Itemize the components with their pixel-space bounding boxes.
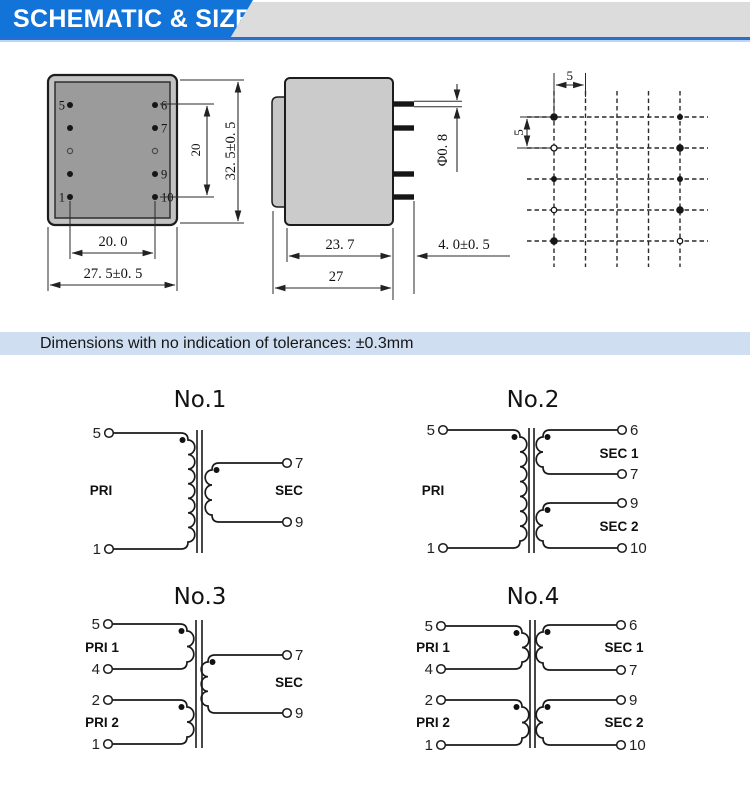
pin-9-dot bbox=[152, 171, 158, 177]
pin-label-7: 7 bbox=[161, 122, 167, 136]
pin-10-dot bbox=[152, 194, 158, 200]
pin-number: 2 bbox=[92, 692, 100, 709]
pin-number: 6 bbox=[630, 422, 638, 439]
winding-label: SEC 1 bbox=[599, 446, 639, 461]
pin-7-dot bbox=[152, 125, 158, 131]
terminal-circle bbox=[617, 696, 626, 705]
pin-number: 1 bbox=[92, 736, 100, 753]
winding-label: PRI 2 bbox=[416, 715, 450, 730]
terminal-circle bbox=[105, 545, 114, 554]
terminal-circle bbox=[618, 470, 627, 479]
dim-pin-row-height: 20 bbox=[188, 144, 203, 157]
terminal-circle bbox=[437, 741, 446, 750]
phase-dot bbox=[545, 629, 551, 635]
schematic-title: No.3 bbox=[174, 584, 227, 610]
terminal-circle bbox=[618, 499, 627, 508]
pin-number: 10 bbox=[630, 540, 647, 557]
pin-number: 4 bbox=[425, 661, 433, 678]
pin-number: 5 bbox=[93, 425, 101, 442]
pin-6-dot bbox=[152, 102, 158, 108]
pin-label-1: 1 bbox=[59, 191, 65, 205]
terminal-circle bbox=[437, 696, 446, 705]
pin-number: 9 bbox=[295, 705, 303, 722]
terminal-circle bbox=[618, 544, 627, 553]
terminal-circle bbox=[283, 459, 292, 468]
pin-bar-2 bbox=[393, 125, 414, 130]
terminal-circle bbox=[283, 651, 292, 660]
winding-label: SEC 2 bbox=[599, 519, 638, 534]
pin-number: 1 bbox=[425, 737, 433, 754]
phase-dot bbox=[179, 704, 185, 710]
winding-label: PRI bbox=[90, 483, 113, 498]
pin-number: 1 bbox=[93, 541, 101, 558]
pin-number: 7 bbox=[630, 466, 638, 483]
winding-label: SEC bbox=[275, 483, 303, 498]
winding-label: SEC bbox=[275, 675, 303, 690]
phase-dot bbox=[210, 659, 216, 665]
dim-grid-pitch-h: 5 bbox=[567, 68, 574, 83]
pin-number: 7 bbox=[295, 647, 303, 664]
phase-dot bbox=[545, 704, 551, 710]
pin-grid-drawing: 5 5 bbox=[515, 55, 750, 315]
schematic-1: No.151PRI79SEC bbox=[55, 378, 315, 575]
winding-label: PRI 1 bbox=[416, 640, 450, 655]
phase-dot bbox=[545, 434, 551, 440]
pin-number: 4 bbox=[92, 661, 100, 678]
schematic-title: No.1 bbox=[174, 387, 227, 413]
winding-label: PRI 1 bbox=[85, 640, 119, 655]
winding-coil bbox=[113, 433, 195, 549]
terminal-circle bbox=[437, 665, 446, 674]
phase-dot bbox=[514, 630, 520, 636]
grid-pin-dot bbox=[676, 206, 684, 214]
terminal-circle bbox=[104, 620, 113, 629]
schematic-4: No.454PRI 121PRI 267SEC 1910SEC 2 bbox=[395, 575, 705, 785]
terminal-circle bbox=[283, 518, 292, 527]
pin-number: 5 bbox=[427, 422, 435, 439]
pin-number: 9 bbox=[629, 692, 637, 709]
terminal-circle bbox=[617, 666, 626, 675]
phase-dot bbox=[514, 704, 520, 710]
pin-number: 10 bbox=[629, 737, 646, 754]
pin-number: 6 bbox=[629, 617, 637, 634]
dim-body-height: 32. 5±0. 5 bbox=[223, 122, 239, 181]
phase-dot bbox=[545, 507, 551, 513]
pin-label-9: 9 bbox=[161, 168, 167, 182]
pin-number: 9 bbox=[630, 495, 638, 512]
terminal-circle bbox=[104, 740, 113, 749]
terminal-circle bbox=[618, 426, 627, 435]
pin-bar-4 bbox=[393, 194, 414, 199]
dim-pin-diameter: Φ0. 8 bbox=[435, 134, 451, 166]
pin-2-dot bbox=[67, 171, 73, 177]
schematic-2: No.251PRI67SEC 1910SEC 2 bbox=[395, 378, 705, 575]
winding-label: PRI 2 bbox=[85, 715, 119, 730]
tolerance-note-text: Dimensions with no indication of toleran… bbox=[40, 335, 413, 352]
winding-coil bbox=[447, 430, 527, 548]
terminal-circle bbox=[617, 621, 626, 630]
phase-dot bbox=[180, 437, 186, 443]
winding-label: PRI bbox=[422, 483, 445, 498]
pin-number: 9 bbox=[295, 514, 303, 531]
schematic-title: No.4 bbox=[507, 584, 560, 610]
header-underline-light bbox=[0, 40, 750, 42]
terminal-circle bbox=[104, 665, 113, 674]
phase-dot bbox=[214, 467, 220, 473]
terminal-circle bbox=[105, 429, 114, 438]
pin-4-dot bbox=[67, 125, 73, 131]
dim-side-body-width: 23. 7 bbox=[326, 237, 355, 253]
top-view-drawing: 5 1 6 7 9 10 20 32. 5±0. 5 20. 0 27. 5±0… bbox=[25, 60, 255, 320]
pin-number: 2 bbox=[425, 692, 433, 709]
grid-pin-dot bbox=[676, 144, 684, 152]
grid-pin-hollow bbox=[551, 207, 556, 212]
terminal-circle bbox=[439, 544, 448, 553]
dim-pin-length: 4. 0±0. 5 bbox=[438, 237, 489, 253]
winding-label: SEC 2 bbox=[604, 715, 643, 730]
grid-pin-dot bbox=[550, 237, 558, 245]
grid-pin-dot bbox=[677, 176, 683, 182]
terminal-circle bbox=[617, 741, 626, 750]
pin-number: 7 bbox=[629, 662, 637, 679]
terminal-circle bbox=[439, 426, 448, 435]
terminal-circle bbox=[283, 709, 292, 718]
pin-number: 5 bbox=[92, 616, 100, 633]
pin-bar-3 bbox=[393, 171, 414, 176]
side-view-drawing: Φ0. 8 23. 7 27 4. 0±0. 5 bbox=[260, 60, 515, 320]
section-title: SCHEMATIC & SIZE bbox=[13, 5, 252, 33]
tolerance-note-bar: Dimensions with no indication of toleran… bbox=[0, 332, 750, 355]
pin-number: 1 bbox=[427, 540, 435, 557]
transformer-body-side bbox=[285, 78, 393, 225]
pin-label-6: 6 bbox=[161, 99, 167, 113]
dim-side-total-width: 27 bbox=[329, 269, 344, 285]
pin-1-dot bbox=[67, 194, 73, 200]
grid-pin-dot bbox=[677, 114, 683, 120]
terminal-circle bbox=[437, 622, 446, 631]
phase-dot bbox=[179, 628, 185, 634]
winding-label: SEC 1 bbox=[604, 640, 644, 655]
section-title-banner: SCHEMATIC & SIZE bbox=[0, 0, 253, 38]
dim-body-width: 27. 5±0. 5 bbox=[84, 266, 143, 282]
pin-5-dot bbox=[67, 102, 73, 108]
pin-number: 7 bbox=[295, 455, 303, 472]
phase-dot bbox=[512, 434, 518, 440]
pin-number: 5 bbox=[425, 618, 433, 635]
dim-pin-span: 20. 0 bbox=[99, 234, 128, 250]
grid-pin-hollow bbox=[551, 145, 557, 151]
schematic-3: No.354PRI 121PRI 279SEC bbox=[55, 575, 315, 785]
schematic-title: No.2 bbox=[507, 387, 560, 413]
grid-pin-dot bbox=[551, 176, 557, 182]
pin-bar-1 bbox=[393, 101, 414, 106]
dim-grid-pitch-v: 5 bbox=[511, 129, 526, 136]
grid-pin-hollow bbox=[677, 238, 682, 243]
pin-label-5: 5 bbox=[59, 99, 65, 113]
terminal-circle bbox=[104, 696, 113, 705]
